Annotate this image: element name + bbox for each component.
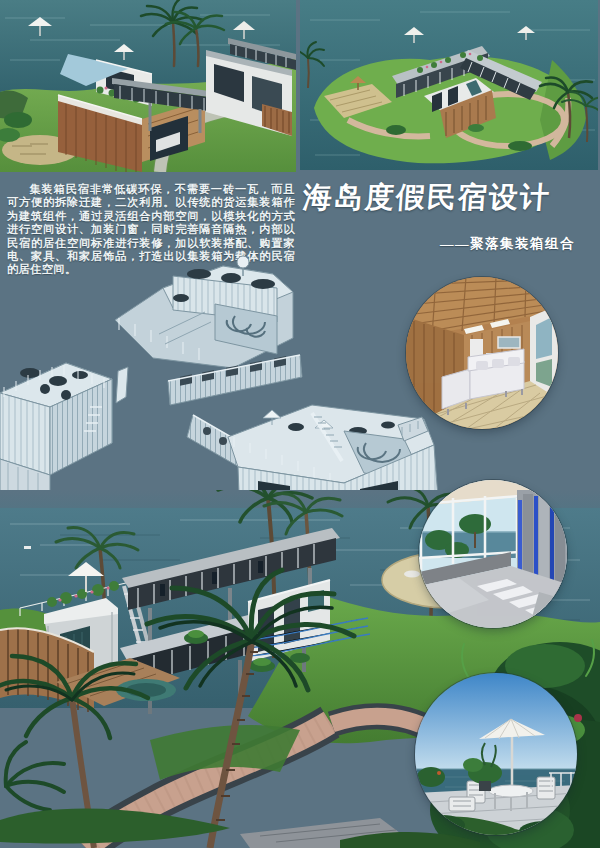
kitchen-window bbox=[498, 337, 520, 348]
poster-title: 海岛度假民宿设计 bbox=[302, 178, 597, 218]
terrace-exterior bbox=[415, 673, 577, 835]
living-room-interior bbox=[406, 277, 558, 429]
design-poster: 集装箱民宿非常低碳环保，不需要一砖一瓦，而且可方便的拆除迁建，二次利用。以传统的… bbox=[0, 0, 600, 848]
poster-subtitle: ——聚落集装箱组合 bbox=[303, 235, 595, 253]
inset-terrace bbox=[415, 673, 577, 835]
inset-bedroom bbox=[419, 480, 567, 628]
bedroom-interior bbox=[419, 480, 567, 628]
render-top-right-aerial bbox=[300, 0, 598, 170]
inset-living-room bbox=[406, 277, 558, 429]
module-a bbox=[115, 256, 293, 368]
boat bbox=[24, 546, 31, 549]
title-block: 海岛度假民宿设计 ——聚落集装箱组合 bbox=[303, 178, 595, 253]
render-top-left-island bbox=[0, 0, 296, 172]
